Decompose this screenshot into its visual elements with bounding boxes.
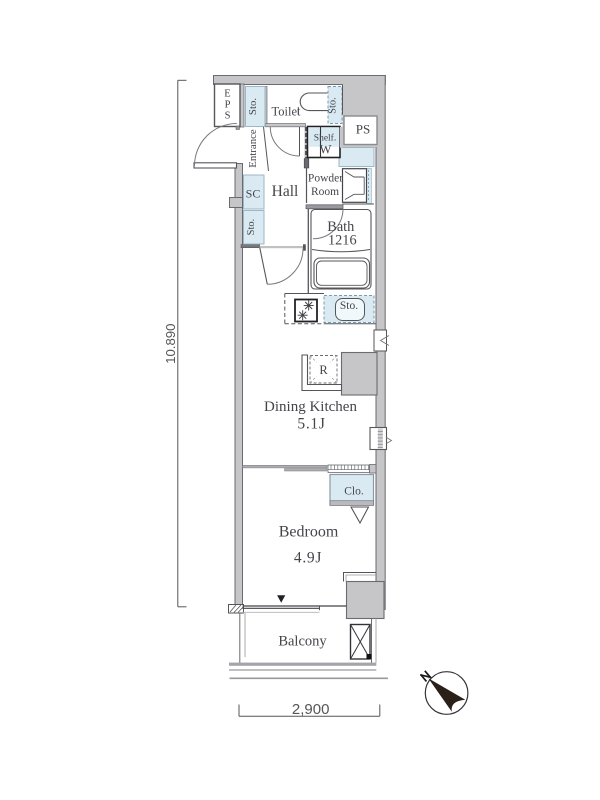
svg-text:Sto.: Sto. [246, 219, 257, 236]
svg-text:10.890: 10.890 [163, 324, 178, 364]
svg-text:4.9J: 4.9J [294, 550, 322, 567]
svg-text:Powder: Powder [308, 173, 343, 185]
svg-text:E: E [224, 89, 230, 100]
svg-text:Clo.: Clo. [344, 486, 364, 498]
svg-text:Sto.: Sto. [247, 98, 259, 115]
svg-text:W: W [320, 143, 332, 157]
svg-text:P: P [225, 100, 231, 111]
svg-text:Toilet: Toilet [272, 105, 302, 119]
svg-text:Entrance: Entrance [247, 129, 259, 168]
svg-text:5.1J: 5.1J [297, 416, 325, 433]
svg-text:Dining Kitchen: Dining Kitchen [264, 399, 357, 415]
svg-text:Sto.: Sto. [340, 300, 358, 312]
svg-text:Room: Room [311, 186, 339, 198]
svg-text:R: R [319, 363, 328, 377]
svg-text:1216: 1216 [328, 233, 357, 249]
svg-text:S: S [225, 111, 231, 122]
svg-text:Balcony: Balcony [278, 634, 327, 650]
svg-text:PS: PS [356, 122, 370, 137]
svg-text:Bedroom: Bedroom [279, 524, 339, 541]
svg-text:SC: SC [246, 187, 261, 201]
svg-text:2,900: 2,900 [292, 701, 330, 718]
svg-text:Hall: Hall [272, 183, 299, 200]
svg-text:Sto.: Sto. [327, 97, 338, 114]
